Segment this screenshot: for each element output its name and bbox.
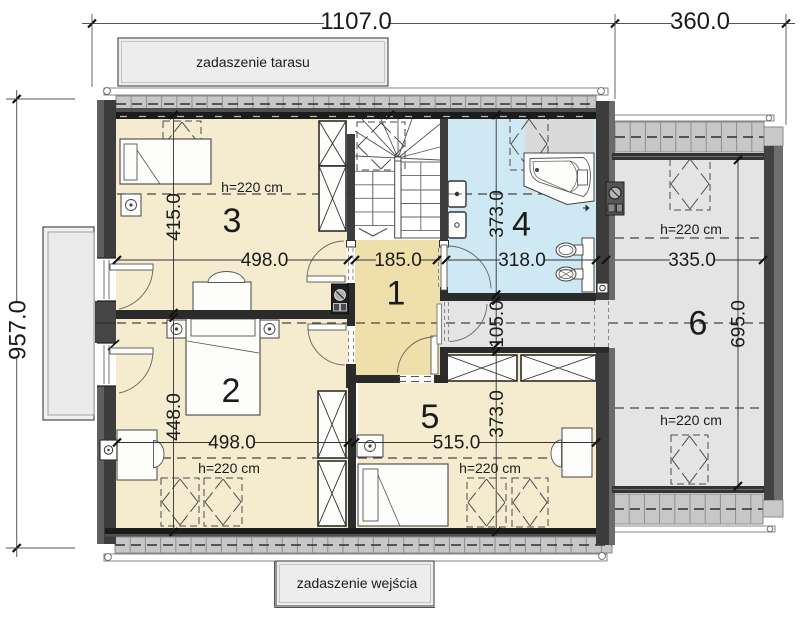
svg-text:695.0: 695.0 xyxy=(729,300,750,348)
svg-text:373.0: 373.0 xyxy=(487,190,508,238)
svg-text:498.0: 498.0 xyxy=(241,250,289,271)
svg-text:448.0: 448.0 xyxy=(164,393,185,441)
svg-text:360.0: 360.0 xyxy=(670,8,730,35)
svg-text:515.0: 515.0 xyxy=(433,433,481,454)
svg-text:zadaszenie tarasu: zadaszenie tarasu xyxy=(196,54,310,70)
svg-text:105.0: 105.0 xyxy=(487,300,508,348)
svg-text:zadaszenie wejścia: zadaszenie wejścia xyxy=(297,575,418,591)
svg-text:957.0: 957.0 xyxy=(5,300,32,360)
svg-text:h=220 cm: h=220 cm xyxy=(459,460,521,476)
svg-text:335.0: 335.0 xyxy=(668,250,716,271)
svg-text:6: 6 xyxy=(689,305,708,343)
svg-text:318.0: 318.0 xyxy=(498,250,546,271)
svg-text:5: 5 xyxy=(421,398,440,436)
svg-text:415.0: 415.0 xyxy=(164,193,185,241)
svg-text:h=220 cm: h=220 cm xyxy=(221,179,283,195)
svg-text:4: 4 xyxy=(512,206,531,244)
svg-text:3: 3 xyxy=(223,202,242,240)
svg-text:2: 2 xyxy=(222,372,241,410)
svg-text:498.0: 498.0 xyxy=(208,433,256,454)
svg-text:373.0: 373.0 xyxy=(487,390,508,438)
svg-text:1: 1 xyxy=(387,275,406,313)
svg-text:h=220 cm: h=220 cm xyxy=(660,412,722,428)
svg-text:185.0: 185.0 xyxy=(374,250,422,271)
svg-text:h=220 cm: h=220 cm xyxy=(198,460,260,476)
svg-text:1107.0: 1107.0 xyxy=(320,8,392,35)
svg-text:h=220 cm: h=220 cm xyxy=(660,221,722,237)
